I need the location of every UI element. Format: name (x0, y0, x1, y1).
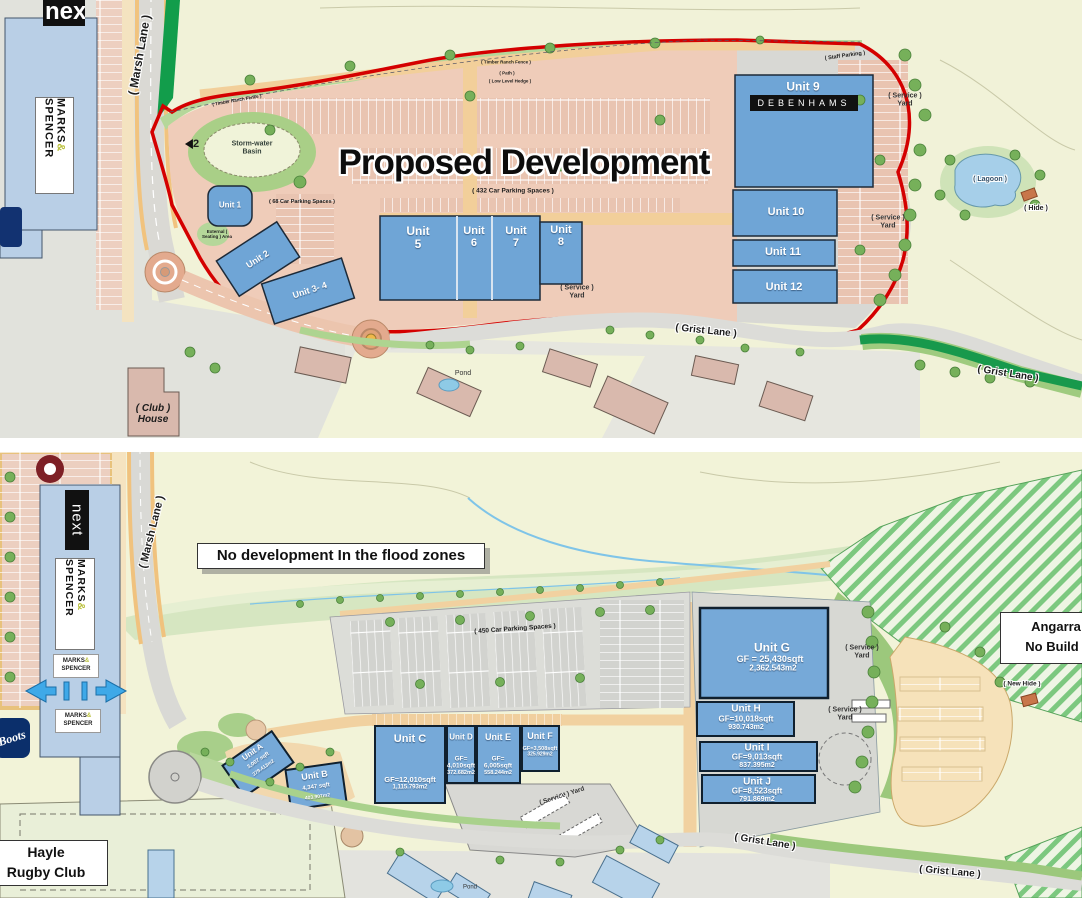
service-yard-label-b1: ( Service )Yard (845, 644, 878, 659)
debenhams-sign: DEBENHAMS (750, 95, 858, 111)
plan-title: Proposed Development (339, 144, 710, 183)
service-yard-label-3: ( Service )Yard (560, 284, 593, 299)
marks-spencer-sign-small-1: MARKS& SPENCER (53, 654, 99, 678)
left-arrow-icon (185, 139, 193, 149)
roundabout-north (145, 252, 185, 292)
costa-coffee-logo-center (44, 463, 56, 475)
parking-432-label: ( 432 Car Parking Spaces ) (472, 187, 554, 194)
unit-d-label: Unit D (449, 734, 473, 743)
next-logo: next (65, 490, 89, 550)
boots-logo-partial (0, 207, 22, 247)
next-logo-partial: next (43, 0, 85, 26)
site-plan-page: { "brands": { "next": "next", "marks_lin… (0, 0, 1082, 901)
unit-c-gf: GF=12,010sqft (384, 776, 435, 784)
angarrack-note: Angarra No Build ( (1000, 612, 1082, 664)
flood-zone-note: No development In the flood zones (197, 543, 485, 569)
service-yard-label-2: ( Service )Yard (871, 214, 904, 229)
unit-h-gf: GF=10,018sqft (719, 716, 774, 725)
hedge-label: ( Low Level Hedge ) (489, 80, 531, 85)
new-hide-label: ( New Hide ) (1003, 680, 1040, 687)
service-yard-label-1: ( Service )Yard (888, 92, 921, 107)
unit-h-label: Unit H (731, 704, 760, 715)
unit-9-label: Unit 9 (786, 80, 819, 93)
unit-c-m2: 1,115.793m2 (392, 785, 427, 792)
lagoon-label: ( Lagoon ) (973, 176, 1007, 184)
entrance-arrows-icon (24, 676, 128, 706)
unit-e-label: Unit E (485, 733, 511, 743)
unit-e-sqft: 6,005sqft (484, 762, 512, 769)
unit-5-label: Unit5 (406, 225, 429, 251)
service-yard-label-b2: ( Service )Yard (828, 706, 861, 721)
large-roundabout (149, 751, 201, 803)
pond-water-bottom (431, 880, 453, 892)
marker-2: 2 (185, 138, 199, 150)
marks-spencer-sign: SPENCER MARKS& (35, 97, 74, 194)
marks-spencer-sign-small-2: MARKS& SPENCER (55, 709, 101, 733)
boots-logo: Boots (0, 718, 30, 758)
unit-1-label: Unit 1 (219, 202, 241, 211)
unit-g-m2: 2,362.543m2 (749, 665, 796, 674)
path-label: ( Path ) (499, 72, 514, 77)
unit-7-label: Unit7 (505, 225, 526, 249)
costa-coffee-logo (36, 455, 64, 483)
hayle-rugby-club-label: Hayle Rugby Club (0, 840, 108, 886)
unit-h-m2: 930.743m2 (728, 724, 763, 732)
unit-f-label: Unit F (527, 732, 553, 742)
top-site-plan: Proposed Development ( Marsh Lane ) ( Gr… (0, 0, 1082, 438)
pond-water (439, 379, 459, 391)
unit-6-label: Unit6 (463, 225, 484, 249)
unit-d-m2: 372.682m2 (447, 770, 475, 776)
hide-label: ( Hide ) (1024, 205, 1048, 213)
unit-e-m2: 558.244m2 (484, 770, 512, 776)
unit-c-label: Unit C (394, 733, 426, 745)
unit-i-gf: GF=9,013sqft (732, 754, 782, 763)
unit-f-m2: 325.929m2 (527, 752, 552, 758)
unit-10-label: Unit 10 (768, 206, 805, 218)
top-plan-drawing (0, 0, 1082, 438)
pond-label-bottom: Pond (463, 885, 477, 892)
bottom-site-plan: No development In the flood zones ( Mars… (0, 452, 1082, 898)
storm-basin-label: Storm-water Basin (232, 140, 273, 155)
unit-b-label: Unit B 4,347 sqft 403.907m2 (300, 769, 332, 802)
unit-j-gf: GF=8,523sqft (732, 788, 782, 797)
unit-12-label: Unit 12 (766, 281, 803, 293)
marks-spencer-sign-large: SPENCER MARKS& (55, 558, 95, 650)
unit-8-label: Unit8 (550, 224, 571, 248)
unit-j-m2: 791.869m2 (739, 796, 774, 804)
club-house-label: ( Club )House (136, 403, 170, 425)
external-seating-label: External ( Seating ) Area (201, 230, 233, 240)
unit-11-label: Unit 11 (765, 246, 801, 258)
pond-label-top: Pond (455, 370, 471, 378)
bottom-plan-drawing (0, 452, 1082, 898)
timber-fence-label-2: ( Timber Ranch Fence ) (481, 61, 531, 66)
unit-i-m2: 837.395m2 (739, 762, 774, 770)
parking-68-label: ( 68 Car Parking Spaces ) (269, 199, 335, 205)
unit-g-label: Unit G (754, 641, 790, 654)
unit-d-sqft: 4,010sqft (447, 762, 475, 769)
